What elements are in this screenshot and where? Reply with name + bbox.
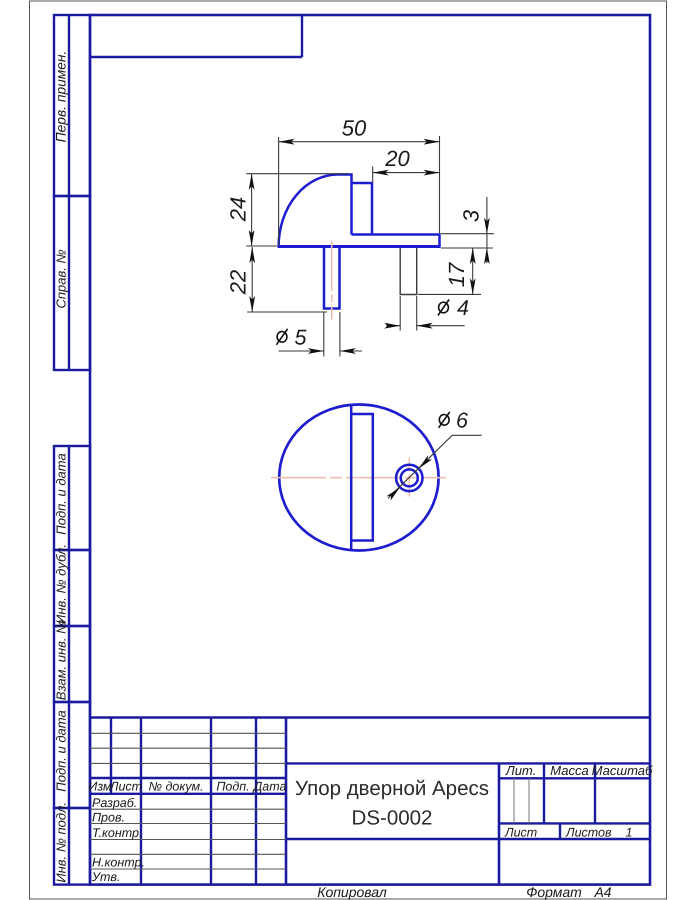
svg-text:Масштаб: Масштаб <box>592 763 653 778</box>
svg-text:Инв. № дубл.: Инв. № дубл. <box>54 544 69 624</box>
svg-text:Дата: Дата <box>252 780 287 794</box>
svg-text:Копировал: Копировал <box>317 884 387 900</box>
svg-text:Упор дверной Apecs: Упор дверной Apecs <box>295 777 489 800</box>
svg-text:24: 24 <box>226 197 251 222</box>
svg-text:Масса: Масса <box>550 763 588 778</box>
svg-text:Разраб.: Разраб. <box>92 796 137 810</box>
svg-text:Пров.: Пров. <box>92 811 125 825</box>
svg-text:50: 50 <box>342 116 367 141</box>
svg-text:Подп.: Подп. <box>216 780 249 794</box>
svg-text:Листов: Листов <box>565 826 612 840</box>
svg-text:Лист: Лист <box>109 780 142 794</box>
svg-text:№ докум.: № докум. <box>148 780 203 794</box>
svg-text:3: 3 <box>459 209 484 222</box>
svg-text:Т.контр.: Т.контр. <box>92 826 142 840</box>
svg-text:5: 5 <box>295 326 308 350</box>
svg-text:Подп. и дата: Подп. и дата <box>54 710 69 791</box>
svg-text:4: 4 <box>457 296 469 320</box>
svg-text:1: 1 <box>626 826 633 840</box>
svg-text:Утв.: Утв. <box>91 870 120 884</box>
svg-text:Инв. № подл.: Инв. № подл. <box>54 802 69 883</box>
svg-text:DS-0002: DS-0002 <box>352 807 433 830</box>
svg-text:Изм: Изм <box>88 780 112 794</box>
svg-text:Лит.: Лит. <box>505 763 536 778</box>
svg-text:22: 22 <box>226 270 251 295</box>
svg-text:17: 17 <box>444 262 469 287</box>
svg-text:Формат: Формат <box>526 884 582 900</box>
svg-text:20: 20 <box>384 146 410 171</box>
svg-text:Подп. и дата: Подп. и дата <box>54 453 69 534</box>
svg-text:6: 6 <box>456 409 468 433</box>
svg-text:Лист: Лист <box>504 826 537 840</box>
svg-text:Перв. примен.: Перв. примен. <box>54 51 69 143</box>
svg-text:Взам. инв. №: Взам. инв. № <box>54 620 69 700</box>
svg-text:Н.контр.: Н.контр. <box>92 856 145 870</box>
svg-text:А4: А4 <box>593 884 611 900</box>
svg-text:Справ. №: Справ. № <box>54 249 69 308</box>
